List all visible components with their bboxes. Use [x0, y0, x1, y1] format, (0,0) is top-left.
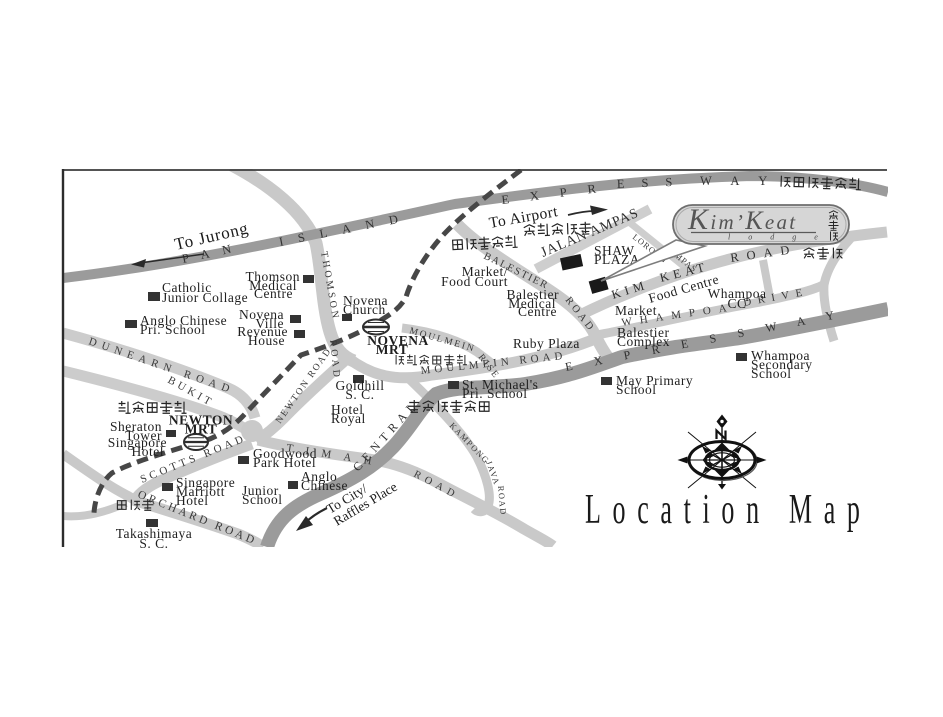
svg-text:House: House [248, 333, 285, 348]
svg-text:Royal: Royal [331, 411, 366, 426]
svg-text:Food Court: Food Court [441, 274, 508, 289]
svg-text:Ruby Plaza: Ruby Plaza [513, 336, 580, 351]
svg-text:Park Hotel: Park Hotel [253, 455, 316, 470]
svg-text:MRT: MRT [376, 342, 409, 357]
svg-text:Pri. School: Pri. School [462, 386, 528, 401]
svg-text:CC: CC [727, 296, 746, 311]
svg-text:Complex: Complex [617, 334, 670, 349]
svg-text:MRT: MRT [185, 422, 218, 437]
svg-text:Junior Collage: Junior Collage [162, 290, 248, 305]
svg-text:Centre: Centre [518, 304, 557, 319]
svg-text:Hotel: Hotel [132, 444, 165, 459]
svg-text:S. C.: S. C. [139, 536, 168, 551]
svg-text:WAY: WAY [700, 174, 787, 188]
svg-text:l o d g e: l o d g e [728, 233, 826, 242]
svg-text:ESS: ESS [617, 174, 690, 191]
svg-text:School: School [616, 382, 657, 397]
svg-text:S. C.: S. C. [345, 387, 374, 402]
svg-text:Church: Church [343, 302, 386, 317]
svg-text:Hotel: Hotel [176, 493, 209, 508]
svg-text:Location Map: Location Map [585, 486, 872, 533]
svg-text:Pri. School: Pri. School [140, 322, 206, 337]
svg-text:School: School [242, 492, 283, 507]
svg-text:Chinese: Chinese [301, 478, 348, 493]
svg-text:School: School [751, 366, 792, 381]
svg-text:Centre: Centre [254, 286, 293, 301]
